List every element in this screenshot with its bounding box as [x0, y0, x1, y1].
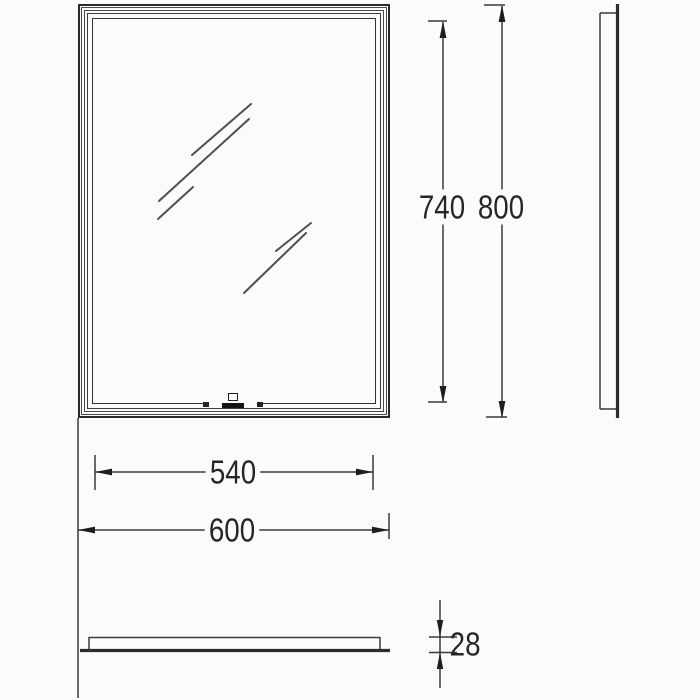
mirror-front-view	[78, 4, 390, 418]
reflection-line	[192, 104, 251, 155]
dimension-label-overall-width: 600	[205, 513, 260, 548]
reflection-line	[158, 187, 193, 219]
dimension-label-inner-height: 740	[415, 190, 470, 225]
dimension-label-overall-height: 800	[474, 190, 529, 225]
reflection-line	[276, 223, 311, 251]
dimension-label-depth: 28	[448, 627, 482, 662]
mirror-side-view	[600, 4, 618, 418]
reflection-line	[244, 233, 306, 293]
technical-drawing: 740 800 540 600 28	[0, 0, 700, 700]
mirror-bottom-view	[80, 637, 390, 651]
reflection-line	[159, 119, 249, 201]
glass-reflection-hatching	[78, 4, 390, 418]
dimension-label-inner-width: 540	[206, 455, 261, 490]
